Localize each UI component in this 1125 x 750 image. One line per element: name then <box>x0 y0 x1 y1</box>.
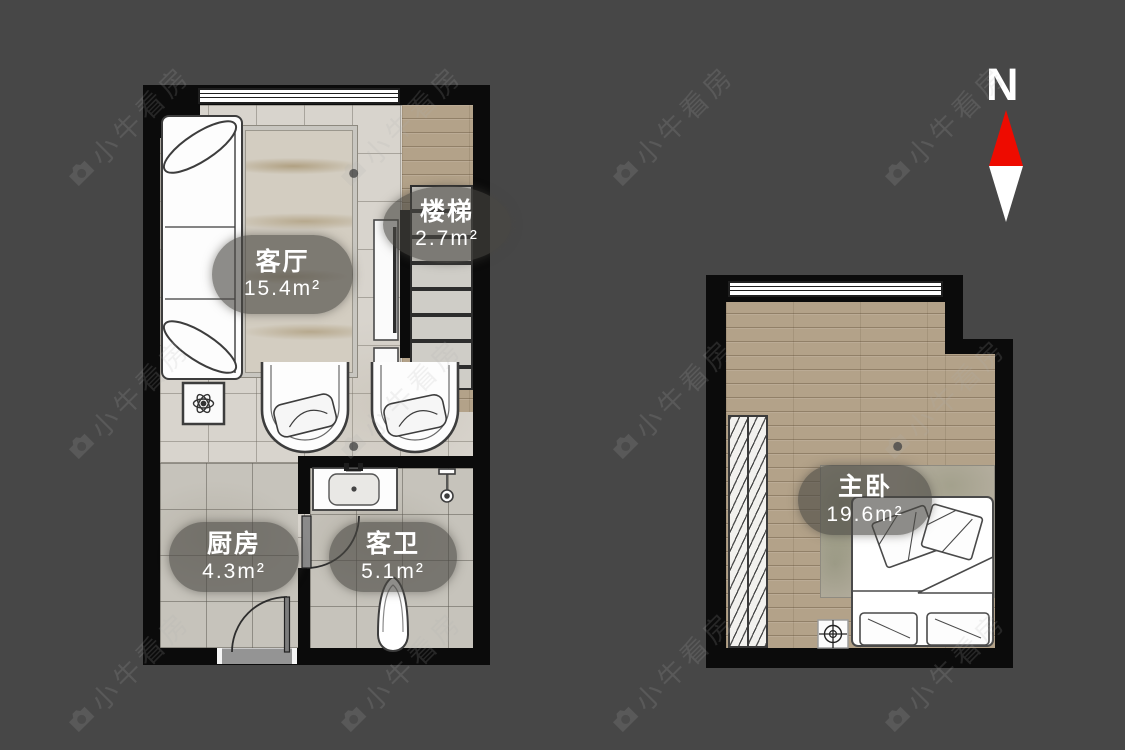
plant-side-table <box>183 383 224 424</box>
bed-pillow-1 <box>860 613 917 645</box>
bed-pillow-2 <box>927 613 989 645</box>
room-label-master-bedroom: 主卧 19.6m² <box>798 465 932 535</box>
compass-north-label: N <box>986 62 1019 107</box>
camera-icon <box>608 429 641 462</box>
camera-icon <box>64 156 97 189</box>
compass-arrow-icon <box>988 108 1024 226</box>
armchair-1 <box>262 362 348 452</box>
room-area: 15.4m² <box>244 276 321 301</box>
room-area: 2.7m² <box>415 226 479 251</box>
floor2-plan: 主卧 19.6m² <box>706 275 1013 668</box>
room-name: 楼梯 <box>420 198 474 227</box>
room-name: 主卧 <box>838 473 892 502</box>
room-area: 19.6m² <box>826 502 903 527</box>
bathroom-door-leaf <box>302 516 311 568</box>
room-name: 客厅 <box>255 248 309 277</box>
floor1-plan: 客厅 15.4m² 楼梯 2.7m² 厨房 4.3m² 客卫 5.1m² <box>143 85 490 665</box>
camera-icon <box>64 429 97 462</box>
watermark: 小牛看房 <box>602 55 743 196</box>
bathroom-vanity <box>313 463 397 510</box>
floor-drain-symbol <box>818 620 848 648</box>
entry-door-leaf <box>285 597 290 652</box>
camera-icon <box>336 702 369 735</box>
room-area: 4.3m² <box>202 559 266 584</box>
entry-door <box>232 597 290 652</box>
camera-icon <box>608 156 641 189</box>
room-label-guest-bathroom: 客卫 5.1m² <box>329 522 457 592</box>
watermark-text: 小牛看房 <box>624 55 742 173</box>
armchair-2 <box>372 362 458 452</box>
room-area: 5.1m² <box>361 559 425 584</box>
camera-icon <box>880 702 913 735</box>
room-label-kitchen: 厨房 4.3m² <box>169 522 299 592</box>
camera-icon <box>64 702 97 735</box>
room-label-living-room: 客厅 15.4m² <box>212 235 353 314</box>
room-label-stairs: 楼梯 2.7m² <box>383 186 511 263</box>
floorplan-image: 客厅 15.4m² 楼梯 2.7m² 厨房 4.3m² 客卫 5.1m² <box>0 0 1125 750</box>
room-name: 客卫 <box>366 530 420 559</box>
shower-fixture <box>439 469 455 502</box>
camera-icon <box>608 702 641 735</box>
room-name: 厨房 <box>207 530 261 559</box>
camera-icon <box>880 156 913 189</box>
